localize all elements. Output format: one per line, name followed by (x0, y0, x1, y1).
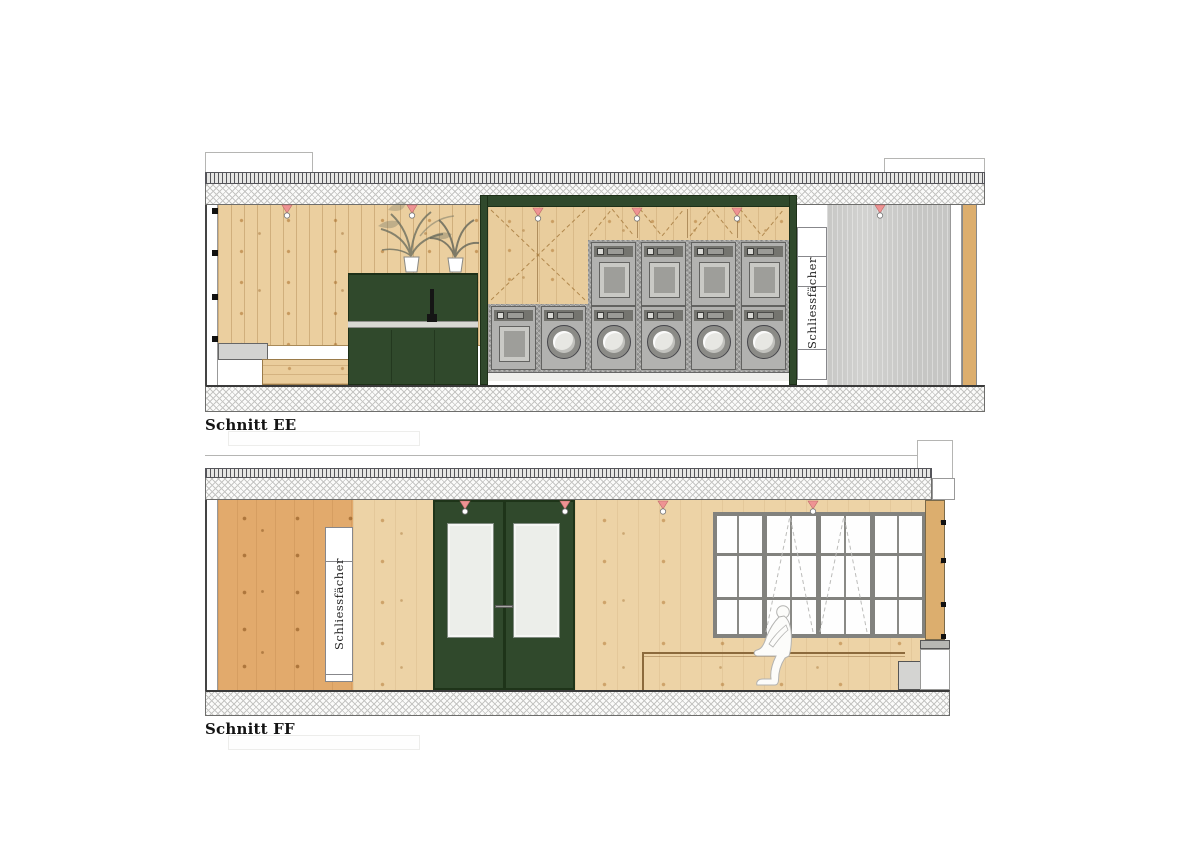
timber-column-cut (962, 205, 977, 385)
fixing-mark (941, 634, 946, 639)
wall-cut-strip (205, 500, 218, 690)
washing-machine (641, 306, 686, 370)
washing-machine (741, 306, 786, 370)
cupboard-seam (637, 209, 638, 238)
door-glass-panel (447, 523, 494, 638)
bench-seat-edge (642, 652, 905, 654)
section-ff-drawing: Schliessfächer (0, 440, 1200, 848)
architectural-drawing-canvas: Schliessfächer Schnitt EE Schliessfäch (0, 0, 1200, 848)
roof-outline-right (884, 158, 985, 172)
window-mullion (762, 516, 767, 634)
window-sill-block (920, 640, 950, 649)
washing-machine (541, 306, 586, 370)
cupboard-seam (687, 209, 688, 238)
green-island-counter (348, 273, 478, 385)
stacked-dryer (741, 242, 786, 306)
cupboard-panel-tall (488, 207, 588, 304)
cupboard-seam (537, 209, 538, 302)
locker-label: Schliessfächer (326, 528, 352, 681)
stacked-dryer (591, 242, 636, 306)
bench-seat-shadow (642, 656, 905, 657)
plinth-outline (920, 649, 950, 690)
window-mullion-thin (737, 516, 739, 634)
fixing-mark (941, 602, 946, 607)
step-curb (218, 343, 268, 360)
fixing-mark (941, 558, 946, 563)
cabinet-door-seam (391, 330, 392, 383)
roof-step-line (917, 440, 952, 441)
cabinet-door-seam (434, 330, 435, 383)
timber-wall-light (353, 500, 433, 690)
floor-slab-hatch (205, 690, 950, 716)
locker-column: Schliessfächer (325, 527, 353, 682)
stacked-dryer (641, 242, 686, 306)
laundry-alcove-jamb-left (480, 195, 488, 385)
faucet-base (427, 314, 437, 322)
door-glass-panel (513, 523, 560, 638)
laundry-alcove-jamb-right (789, 195, 797, 385)
roof-step-line (917, 440, 918, 470)
window-transom (717, 597, 922, 600)
window-transom (717, 553, 922, 556)
stacked-dryer (691, 242, 736, 306)
roof-line (205, 455, 917, 456)
ceiling-slab-course (205, 468, 932, 478)
cupboard-seam (737, 209, 738, 238)
window-mullion (870, 516, 875, 634)
window-mullion-thin (897, 516, 899, 634)
countertop (348, 321, 478, 328)
ceiling-insulation-hatch (205, 478, 932, 500)
window (713, 512, 926, 638)
cupboard-panel-strip (588, 207, 789, 240)
timber-podium (262, 359, 350, 385)
dryer (491, 306, 536, 370)
window-mullion-thin (790, 516, 792, 634)
title-underline-box (228, 735, 420, 750)
laundry-alcove-head (480, 195, 797, 207)
washing-machine (591, 306, 636, 370)
ceiling-slab-course (205, 172, 985, 184)
locker-label: Schliessfächer (798, 228, 826, 379)
door-leaf-divider (503, 502, 506, 688)
section-ee-drawing: Schliessfächer Schnitt EE (0, 0, 1200, 440)
window-mullion (816, 516, 821, 634)
window-mullion-thin (844, 516, 846, 634)
machine-plinth (488, 372, 789, 381)
bench-step-edge (642, 652, 644, 690)
concrete-wall (827, 205, 950, 385)
washing-machine (691, 306, 736, 370)
floor-slab-hatch (205, 385, 985, 412)
fixing-mark (941, 520, 946, 525)
locker-column: Schliessfächer (797, 227, 827, 380)
ceiling-edge-box (932, 478, 955, 500)
roof-step-line (952, 440, 953, 478)
roof-outline-left (205, 152, 313, 172)
door-handle (495, 605, 513, 608)
wall-gap-strip (950, 205, 962, 385)
